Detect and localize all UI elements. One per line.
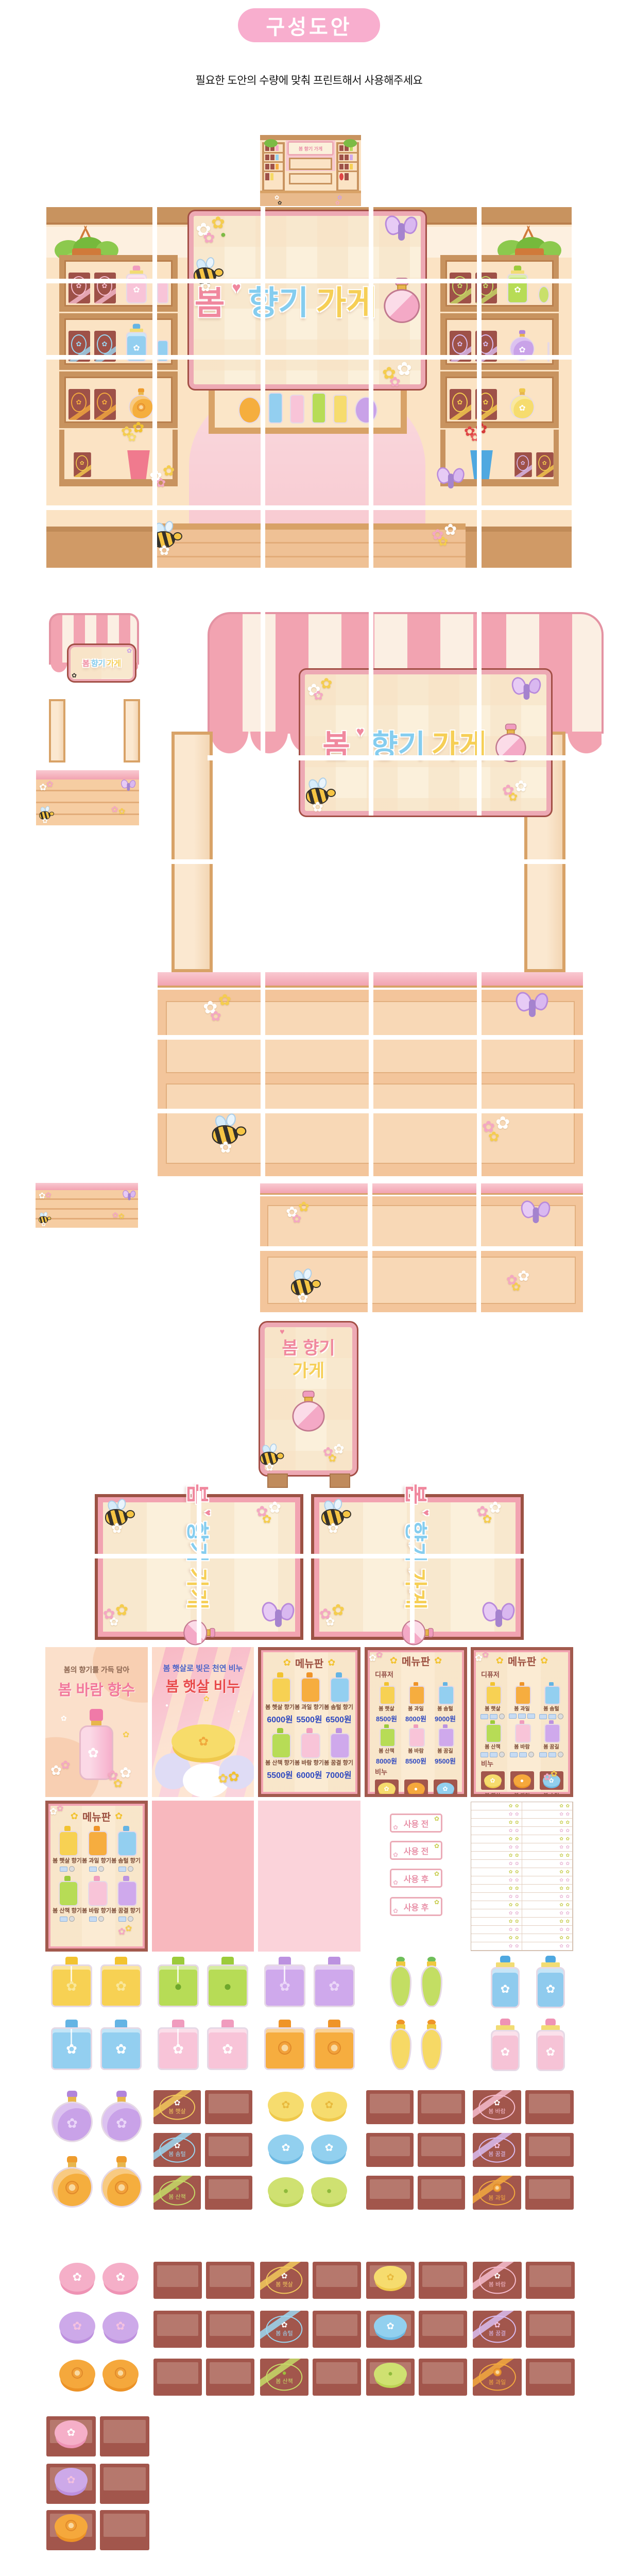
page-title: 구성도안 <box>238 8 380 42</box>
soap-pair-purple: ✿ ✿ <box>59 2312 139 2341</box>
label-card-group: ✿봄 바람 <box>473 2262 575 2299</box>
coin-icons <box>480 1752 505 1757</box>
diffuser-pair-orange <box>264 2020 355 2070</box>
blank-card <box>526 2311 575 2348</box>
product-label: 봄 산책 <box>168 2192 185 2200</box>
poster-soap-title: 봄 햇살 비누 <box>152 1675 254 1696</box>
flower-cluster-icon: ✿✿✿ <box>286 1200 327 1234</box>
menu-item: 봄 솜털9000원 <box>431 1682 460 1723</box>
blank-card-pair <box>153 2262 254 2299</box>
menu-item: ✿봄 햇살 <box>478 1771 507 1797</box>
fold-tab <box>73 1608 97 1635</box>
mini-plant-icon <box>264 139 278 147</box>
small-counter: ✿✿ ✿ ✿✿ <box>36 1183 138 1228</box>
tag-before: 사용 전 <box>390 1814 442 1833</box>
cut-line <box>46 505 572 510</box>
display-bottle <box>355 397 377 423</box>
soap-pair-blue: ✿ ✿ <box>268 2134 347 2161</box>
menu-item: 봄 솜털 향기 <box>111 1826 141 1872</box>
soap-pair-orange <box>59 2360 139 2388</box>
product-label: 봄 과일 <box>488 2193 505 2201</box>
blank-card <box>525 2176 574 2210</box>
flower-icon: ✿ <box>123 1730 129 1740</box>
butterfly-icon <box>384 215 418 246</box>
product-label: 봄 꿈결 <box>488 2149 505 2158</box>
blank-card <box>205 2133 252 2167</box>
butterfly-icon <box>436 467 465 494</box>
soap-illustration: ✿ <box>171 1724 235 1758</box>
flower-cluster-icon: ✿✿✿ <box>482 1114 528 1154</box>
blank-card <box>100 2510 149 2550</box>
flower-cluster-icon: ✿✿✿ <box>382 360 428 396</box>
cut-line <box>261 612 265 816</box>
flower-cluster-icon: ✿✿✿ <box>476 1500 516 1531</box>
bee-icon: ✿ <box>260 1446 284 1468</box>
shelf-row: ✿ ✿ ✿ <box>440 371 559 428</box>
menu-item: 봄 과일 <box>507 1682 537 1719</box>
cut-line <box>410 1491 415 1643</box>
flower-cluster-icon: ✿✿ <box>49 1805 75 1827</box>
sign-word-bom: 봄 <box>82 658 90 669</box>
bee-icon: ✿ <box>72 672 77 679</box>
flower-cluster-icon: ✿✿✿ <box>506 1269 547 1303</box>
butterfly-icon <box>515 992 549 1023</box>
section-label-soap: 비누 <box>368 1766 464 1777</box>
butterfly-icon <box>261 1602 295 1633</box>
blank-card <box>419 2262 467 2299</box>
craft-template-page: 구성도안 필요한 도안의 수량에 맞춰 프린트해서 사용해주세요 봄 향기 가게… <box>0 0 618 2576</box>
sparkle-icon: ● <box>165 1703 168 1708</box>
menu-item: 봄 과일 향기5500원 <box>295 1672 324 1725</box>
flower-cluster-icon: ✿✿✿ <box>319 1603 358 1634</box>
flower-vase <box>125 450 152 479</box>
round-bottle <box>128 388 153 420</box>
soap-card-group: ● <box>366 2359 467 2396</box>
blank-card-pair <box>153 2311 254 2348</box>
small-counter: ✿✿ ✿ ✿✿ <box>36 770 139 825</box>
coin-icons <box>89 1866 104 1872</box>
label-card-group: ✿봄 꿈결 <box>473 2133 574 2167</box>
light-pink-backdrop-sheet <box>258 1801 360 1952</box>
cut-line <box>152 207 157 568</box>
product-box: ✿ <box>514 452 532 477</box>
menu-item: 봄 산책 <box>478 1720 507 1757</box>
shelf-row: ✿ ✿ ✿ <box>440 313 559 370</box>
flower-cluster-icon: ✿✿✿ <box>432 522 473 558</box>
cut-line <box>369 207 373 568</box>
mini-plant-icon <box>344 139 357 147</box>
blank-card-pair <box>366 2133 465 2167</box>
display-bottle <box>268 393 283 423</box>
menu-header: 메뉴판 <box>82 1809 111 1824</box>
poster-soap: 봄 햇살로 빚은 천연 비누 봄 햇살 비누 ✿ ● ● ✿ ✿✿ <box>152 1647 254 1797</box>
coin-icons <box>510 1752 534 1757</box>
flower-cluster-icon: ✿✿ <box>50 1759 87 1790</box>
pink-backdrop-sheet <box>152 1801 254 1952</box>
cut-line <box>260 1246 583 1251</box>
menu-header: 메뉴판 <box>402 1653 430 1668</box>
soap-card-group: ✿ <box>366 2262 467 2299</box>
product-label: 봄 바람 <box>489 2280 506 2288</box>
spray-bottle: ✿ <box>125 266 148 303</box>
label-card-group: ✿봄 솜털 <box>260 2311 361 2348</box>
poster-perfume: 봄의 향기를 가득 담아 봄 바람 향수 ✿ ✿ ✿ ✿✿ ✿✿✿ <box>45 1647 148 1797</box>
menu-item: 봄 솜털 향기6500원 <box>324 1672 353 1725</box>
menu-item: ●봄 과일 <box>507 1771 537 1797</box>
cut-line <box>477 972 482 1176</box>
menu-card-coins: ✿메뉴판✿ 봄 햇살 향기 봄 과일 향기 봄 솜털 향기 봄 산책 향기 봄 … <box>45 1801 148 1952</box>
butterfly-icon <box>482 1602 516 1633</box>
menu-item: 봄 햇살 향기6000원 <box>265 1672 295 1725</box>
flower-cluster-icon: ✿✿✿ <box>502 779 543 810</box>
small-bottle <box>538 286 550 303</box>
blank-card <box>313 2262 361 2299</box>
menu-item: 봄 꿈길 <box>537 1720 566 1757</box>
product-box: ✿ <box>450 273 471 303</box>
product-label: 봄 과일 <box>489 2378 506 2386</box>
tag-before: 사용 전 <box>390 1841 442 1860</box>
soap-card-group: ✿ <box>46 2464 149 2504</box>
flower-cluster-icon: ✿✿✿ <box>103 1603 142 1634</box>
display-bottle <box>290 395 304 423</box>
mini-counter: ✿ ✿ ✿ ✿ <box>260 191 361 206</box>
tag-after: 사용 후 <box>390 1897 442 1916</box>
menu-item: 봄 바람 향기6000원 <box>295 1728 324 1781</box>
cut-line <box>369 972 373 1176</box>
small-post-left <box>49 699 65 762</box>
standing-sign-line2: 가게 <box>293 1361 325 1381</box>
label-card-group: ✿봄 솜털 <box>153 2133 252 2167</box>
label-card-group: ✿봄 햇살 <box>260 2262 361 2299</box>
flower-cluster-icon: ✿✿ <box>112 1210 136 1227</box>
coin-icons <box>539 1714 563 1719</box>
flower-cluster-icon: ✿✿✿ <box>256 1500 295 1531</box>
butterfly-icon: ✿ <box>127 647 132 654</box>
mini-shop-sign: 봄 향기 가게 <box>287 141 334 156</box>
bee-icon: ✿ <box>39 1213 51 1225</box>
sign-word-bom: 봄 <box>401 1483 434 1504</box>
cut-line <box>208 755 604 760</box>
sign-word-gage: 가게 <box>316 277 377 324</box>
product-box: ✿ <box>536 452 554 477</box>
menu-header: 메뉴판 <box>295 1655 323 1670</box>
mini-shelf-left <box>262 142 285 192</box>
bee-icon: ✿ <box>212 1117 247 1148</box>
butterfly-icon <box>511 677 541 705</box>
perfume-bottle-icon <box>293 1391 325 1431</box>
cut-line <box>95 1554 524 1558</box>
blank-card <box>100 2464 149 2504</box>
menu-item: ✿봄 솜털4500원 <box>431 1780 460 1797</box>
bee-icon: ✿ <box>291 1272 321 1299</box>
menu-item: ●봄 과일3500원 <box>401 1780 431 1797</box>
label-card-group: ✿봄 꿈결 <box>473 2311 575 2348</box>
blank-card <box>100 2416 149 2456</box>
product-label: 봄 꿈결 <box>489 2329 506 2337</box>
flower-cluster-icon: ✿✿ <box>39 781 65 801</box>
rotated-sign-card: 봄♥ 향기 가게 ✿ ✿✿✿ ✿✿✿ <box>311 1494 524 1640</box>
menu-item: 봄 햇살 향기 <box>53 1826 82 1872</box>
product-label: 봄 햇살 <box>276 2280 293 2288</box>
sign-word-hyanggi: 향기 <box>91 658 106 669</box>
heart-icon: ♥ <box>280 1328 285 1337</box>
menu-header: 메뉴판 <box>508 1653 536 1668</box>
menu-item: 봄 과일 향기 <box>82 1826 111 1872</box>
mini-display-upper <box>289 158 332 170</box>
coin-icons <box>118 1916 133 1922</box>
rose-bouquet-icon: ✿✿✿ <box>464 421 505 452</box>
menu-item: ✿봄 햇살4000원 <box>372 1780 401 1797</box>
label-card-group: ✿봄 햇살 <box>153 2090 252 2124</box>
flower-cluster-icon: ✿✿ <box>111 805 137 823</box>
product-box: ✿ <box>450 389 471 420</box>
coin-icons <box>539 1752 563 1757</box>
menu-item: 봄 햇살8500원 <box>372 1682 401 1723</box>
cut-line <box>158 1035 583 1040</box>
diffuser-pair-purple: ✿ ✿ <box>264 1957 355 2007</box>
blank-card <box>526 2262 575 2299</box>
cut-line <box>171 859 213 864</box>
round-perfume-pair-purple: ✿ ✿ <box>51 2091 143 2143</box>
soap-pair-yellow: ✿ ✿ <box>268 2092 347 2119</box>
menu-item: 봄 산책 향기5500원 <box>265 1728 295 1781</box>
product-label: 봄 솜털 <box>168 2149 185 2158</box>
display-bottle <box>238 397 261 423</box>
tall-pair-blue: ✿ ✿ <box>489 1956 567 2008</box>
soap-card-group: ✿ <box>366 2311 467 2348</box>
blank-card <box>419 2311 467 2348</box>
dropper-pair-green <box>390 1957 442 2007</box>
small-bottle <box>157 282 168 303</box>
record-sheet <box>471 1802 573 1951</box>
rose-pot <box>468 450 495 479</box>
blank-card-pair <box>366 2090 465 2124</box>
shelf-row: ✿ ✿ ✿ <box>440 255 559 312</box>
product-box: ✿ <box>68 389 90 420</box>
flower-icon: ✿ <box>61 1714 67 1723</box>
product-label: 봄 햇살 <box>168 2107 185 2115</box>
cut-line <box>477 612 482 816</box>
flower-cluster-icon: ✿✿✿ <box>323 1442 356 1470</box>
blank-card <box>205 2090 252 2124</box>
sign-word-gage: 가게 <box>107 658 121 669</box>
perfume-bottle-icon <box>402 1620 434 1645</box>
blank-card <box>419 2359 467 2396</box>
tag-after: 사용 후 <box>390 1869 442 1888</box>
dropper-pair-yellow <box>390 2020 442 2070</box>
butterfly-icon <box>520 1200 551 1228</box>
coin-icons <box>509 1714 535 1719</box>
shelf-row: ✿ ✿ <box>59 371 178 428</box>
flower-cluster-icon: ✿✿✿ <box>307 676 348 710</box>
menu-item: 봄 꿈결 향기 <box>111 1876 141 1922</box>
cut-line <box>477 207 482 568</box>
diffuser-pair-blue: ✿ ✿ <box>51 2020 142 2070</box>
sign-word-gage: 가게 <box>401 1568 434 1609</box>
sign-foot <box>267 1473 288 1488</box>
menu-item: 봄 햇살 <box>478 1682 507 1719</box>
soap-card-group <box>46 2510 149 2550</box>
mini-shelf-right <box>336 142 359 192</box>
cut-line <box>46 355 572 360</box>
coin-icons <box>118 1866 133 1872</box>
awning-sign: 봄♥ 향기 가게 ✿✿✿ ✿ ✿✿✿ <box>300 670 551 816</box>
mini-display-lower <box>289 173 332 184</box>
coin-icons <box>60 1866 75 1872</box>
mini-shop-sign-text: 봄 향기 가게 <box>299 145 322 152</box>
blank-card <box>526 2359 575 2396</box>
menu-item: 봄 과일8000원 <box>401 1682 431 1723</box>
diffuser-pair-yellow: ✿ ✿ <box>51 1957 142 2007</box>
flower-cluster-icon: ✿✿✿ <box>203 993 249 1032</box>
poster-perfume-tagline: 봄의 향기를 가득 담아 <box>45 1665 148 1675</box>
cut-line <box>46 279 572 283</box>
spray-bottle: ✿ <box>506 266 529 303</box>
label-card-group: 봄 과일 <box>473 2176 574 2210</box>
diffuser-pair-pink: ✿ ✿ <box>158 2020 248 2070</box>
product-box: ✿ <box>94 389 116 420</box>
mini-shop-preview: 봄 향기 가게 ✿ ✿ ✿ ✿ <box>260 135 361 206</box>
small-post-right <box>124 699 140 762</box>
shelf-row: ✿ ✿ ✿ <box>59 255 178 312</box>
menu-item: 봄 산책8000원 <box>372 1724 401 1766</box>
flower-icon: ✿ <box>203 1694 210 1703</box>
menu-item: 봄 바람 향기 <box>82 1876 111 1922</box>
shop-front: 봄♥ 향기 가게 ✿✿✿● ✿ ✿✿✿ ✿ ✿ ✿ ✿ ✿ ✿ ✿ <box>46 207 572 568</box>
flower-cluster-icon: ✿✿ <box>475 1651 501 1674</box>
product-label: 봄 바람 <box>488 2107 505 2115</box>
blank-card <box>205 2176 252 2210</box>
blank-card <box>525 2133 574 2167</box>
flower-cluster-icon: ✿✿ <box>543 1770 569 1793</box>
blank-card <box>313 2359 361 2396</box>
menu-item: 봄 바람8500원 <box>401 1724 431 1766</box>
label-card-group: ●봄 산책 <box>153 2176 252 2210</box>
tall-pair-pink: ✿ ✿ <box>489 2019 567 2071</box>
coin-icons <box>480 1714 505 1719</box>
flower-cluster-icon: ✿✿✿ <box>107 1766 148 1797</box>
bee-icon: ✿ <box>105 1502 135 1529</box>
soap-pair-green: ● ● <box>268 2177 347 2204</box>
standing-sign-line1: 봄 향기 <box>282 1338 335 1358</box>
butterfly-icon <box>121 779 136 793</box>
soap-pair-pink: ✿ ✿ <box>59 2263 139 2292</box>
menu-item: 봄 산책 향기 <box>53 1876 82 1922</box>
soap-card-group: ✿ <box>46 2416 149 2456</box>
blank-card-pair <box>153 2359 254 2396</box>
cut-line <box>524 859 565 864</box>
coin-icons <box>60 1916 75 1922</box>
sign-foot <box>330 1473 350 1488</box>
poster-perfume-title: 봄 바람 향수 <box>45 1678 148 1700</box>
cut-line <box>197 1491 201 1643</box>
flower-cluster-icon: ✿✿ <box>118 1925 144 1947</box>
blank-card <box>525 2090 574 2124</box>
product-label: 봄 산책 <box>276 2377 293 2385</box>
product-box: ✿ <box>74 452 91 477</box>
poster-menu-coins: ✿메뉴판✿ 디퓨저 봄 햇살 봄 과일 봄 솜털 봄 산책 봄 바람 봄 꿈길 … <box>471 1647 573 1797</box>
flower-cluster-icon: ✿✿ <box>369 1651 394 1674</box>
shelf-row: ✿ ✿ ✿ <box>59 313 178 370</box>
cut-line <box>369 612 373 816</box>
perfume-bottle-icon <box>384 278 420 323</box>
small-awning-sign: 봄 향기 가게 ✿ ✿ <box>68 645 135 681</box>
round-bottle: ✿ <box>509 388 535 420</box>
flower-cluster-icon: ✿✿ <box>218 1770 254 1797</box>
cut-line <box>261 207 265 568</box>
bee-icon: ✿ <box>321 1502 351 1529</box>
product-box: ✿ <box>94 273 116 303</box>
awning-post-left <box>171 732 213 972</box>
bee-icon: ✿ <box>306 781 336 808</box>
label-card-group: 봄 과일 <box>473 2359 575 2396</box>
round-perfume-pair-orange <box>51 2156 143 2209</box>
poster-menu-prices: ✿메뉴판✿ 봄 햇살 향기6000원 봄 과일 향기5500원 봄 솜털 향기6… <box>258 1647 360 1797</box>
fold-tab <box>73 1499 97 1526</box>
menu-item: 봄 솜털 <box>537 1682 566 1719</box>
blank-card <box>313 2311 361 2348</box>
label-card-group: ✿봄 바람 <box>473 2090 574 2124</box>
bee-icon: ✿ <box>39 808 54 821</box>
product-box: ✿ <box>68 273 90 303</box>
sparkle-icon: ● <box>237 1709 240 1714</box>
butterfly-icon <box>123 1190 136 1202</box>
flower-cluster-icon: ✿✿✿● <box>196 214 242 250</box>
poster-menu-detail: ✿메뉴판✿ 디퓨저 봄 햇살8500원 봄 과일8000원 봄 솜털9000원 … <box>365 1647 467 1797</box>
poster-soap-tagline: 봄 햇살로 빚은 천연 비누 <box>152 1663 254 1673</box>
flower-cluster-icon: ✿✿ <box>39 1191 64 1210</box>
shop-counter <box>152 523 466 568</box>
coin-icons <box>89 1916 104 1922</box>
menu-item: 봄 꿈길9500원 <box>431 1724 460 1766</box>
cut-line <box>261 972 265 1176</box>
bee-icon: ✿ <box>194 261 224 287</box>
display-bottle <box>312 393 326 423</box>
standing-sign: 봄 향기 ♥ 가게 ✿ ✿✿✿ <box>260 1323 357 1475</box>
page-subtitle: 필요한 도안의 수량에 맞춰 프린트해서 사용해주세요 <box>0 72 618 88</box>
menu-item: 봄 꿈결 향기7000원 <box>324 1728 353 1781</box>
sign-word-hyanggi: 향기 <box>248 277 309 324</box>
display-bottle <box>333 395 348 423</box>
product-label: 봄 솜털 <box>276 2329 293 2337</box>
section-label-soap: 비누 <box>474 1757 570 1769</box>
side-table-left <box>46 527 156 568</box>
label-card-group: ●봄 산책 <box>260 2359 361 2396</box>
menu-item: 봄 바람 <box>507 1720 537 1757</box>
diffuser-pair-green: ● ● <box>158 1957 248 2007</box>
blank-card-pair <box>366 2176 465 2210</box>
cut-line <box>158 1109 583 1113</box>
